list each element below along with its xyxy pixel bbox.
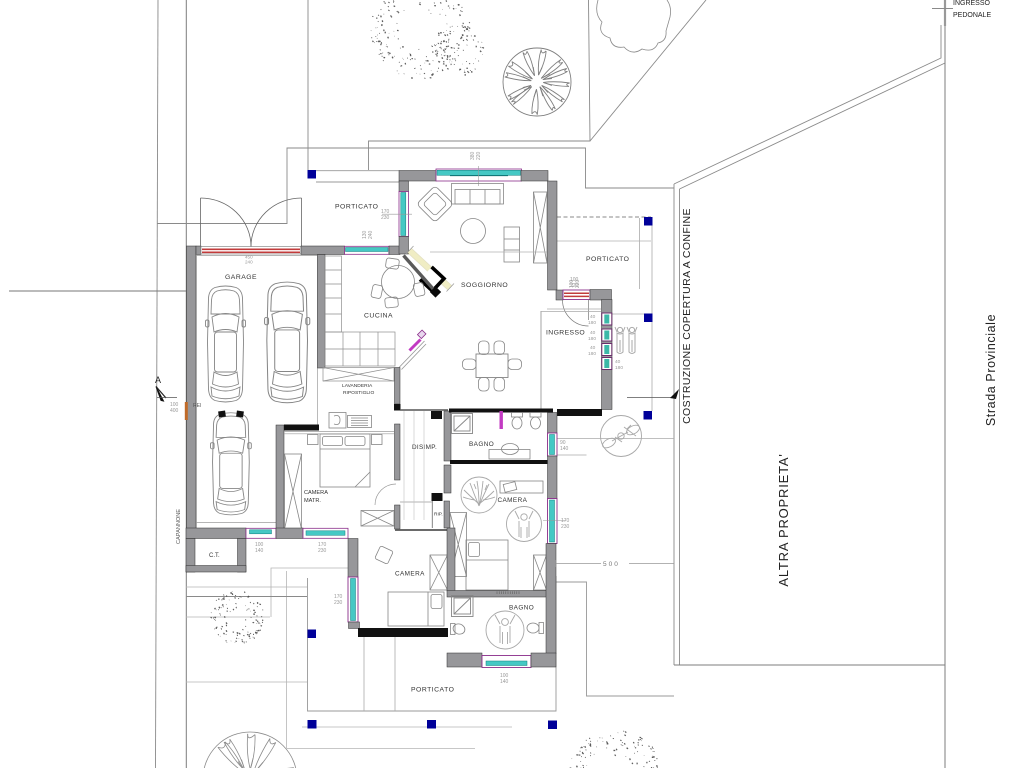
svg-text:PORTICATO: PORTICATO xyxy=(411,687,454,694)
svg-text:40: 40 xyxy=(590,330,596,336)
svg-text:40: 40 xyxy=(590,345,596,351)
svg-text:SOGGIORNO: SOGGIORNO xyxy=(461,282,508,289)
svg-text:INGRESSO: INGRESSO xyxy=(953,0,991,7)
svg-text:180: 180 xyxy=(615,365,623,371)
svg-text:MATR.: MATR. xyxy=(304,498,321,504)
svg-text:240: 240 xyxy=(368,230,374,239)
svg-text:ALTRA PROPRIETA': ALTRA PROPRIETA' xyxy=(776,453,791,586)
svg-text:230: 230 xyxy=(334,600,343,606)
svg-text:230: 230 xyxy=(561,524,570,530)
svg-text:CUCINA: CUCINA xyxy=(364,313,393,320)
svg-text:180: 180 xyxy=(588,320,596,326)
svg-text:C.T.: C.T. xyxy=(209,553,220,559)
svg-text:Strada Provinciale: Strada Provinciale xyxy=(984,314,998,426)
svg-text:CAPANNONE: CAPANNONE xyxy=(176,509,182,544)
svg-text:CAMERA: CAMERA xyxy=(498,497,528,504)
svg-text:GARAGE: GARAGE xyxy=(225,274,257,281)
svg-text:COSTRUZIONE COPERTURA A CONFIN: COSTRUZIONE COPERTURA A CONFINE xyxy=(681,208,693,424)
svg-text:220: 220 xyxy=(476,151,482,160)
svg-text:500: 500 xyxy=(603,561,620,568)
svg-text:180: 180 xyxy=(588,336,596,342)
svg-text:40: 40 xyxy=(615,359,621,365)
svg-text:INGRESSO: INGRESSO xyxy=(546,330,585,337)
svg-text:RIPOSTIGLIO: RIPOSTIGLIO xyxy=(343,390,374,396)
svg-text:PORTICATO: PORTICATO xyxy=(586,256,629,263)
svg-text:PORTICATO: PORTICATO xyxy=(335,204,378,211)
svg-text:230: 230 xyxy=(318,548,327,554)
svg-text:A: A xyxy=(155,375,161,385)
svg-text:240: 240 xyxy=(245,260,253,265)
svg-text:PEDONALE: PEDONALE xyxy=(953,12,991,19)
svg-text:140: 140 xyxy=(500,679,509,685)
svg-text:230: 230 xyxy=(381,215,390,221)
svg-text:180: 180 xyxy=(588,351,596,357)
svg-text:140: 140 xyxy=(255,548,264,554)
svg-text:220: 220 xyxy=(575,279,581,288)
svg-text:REI: REI xyxy=(193,403,201,409)
svg-text:BAGNO: BAGNO xyxy=(509,605,534,612)
svg-text:CAMERA: CAMERA xyxy=(395,571,425,578)
svg-text:140: 140 xyxy=(560,446,569,452)
svg-text:400: 400 xyxy=(170,408,179,414)
svg-text:LAVANDERIA: LAVANDERIA xyxy=(342,383,373,389)
svg-text:40: 40 xyxy=(590,314,596,320)
svg-text:DISIMP.: DISIMP. xyxy=(412,444,437,451)
svg-text:RIP.: RIP. xyxy=(434,512,443,518)
svg-text:CAMERA: CAMERA xyxy=(304,490,328,496)
svg-text:BAGNO: BAGNO xyxy=(469,441,494,448)
